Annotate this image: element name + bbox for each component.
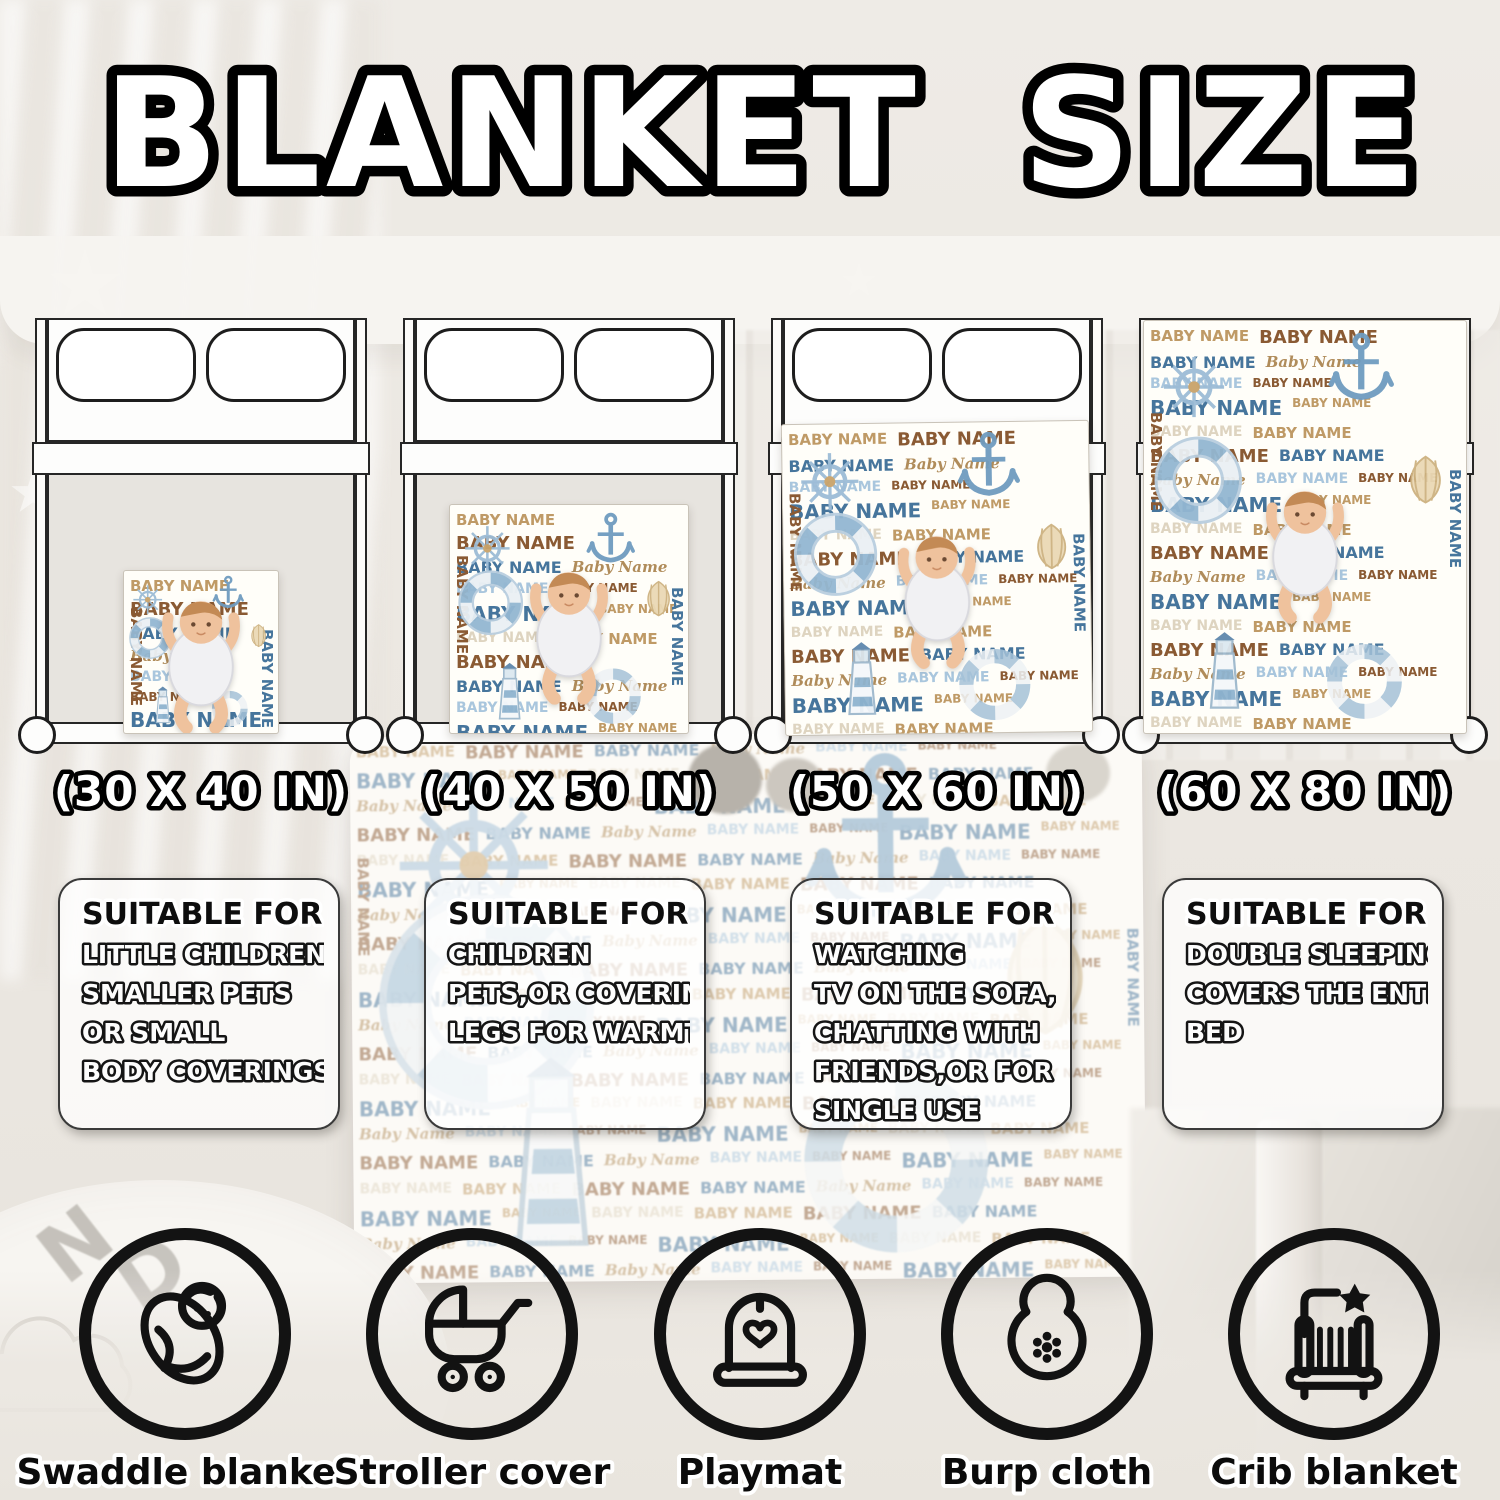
- blanket-pattern-word: BABY NAME: [1358, 568, 1437, 587]
- bed-post: [346, 716, 384, 754]
- blanket-60x80: BABY NAMEBABY NAMEBABY NAMEBaby NameBABY…: [1143, 320, 1467, 734]
- blanket-pattern-word: BABY NAME: [792, 721, 885, 735]
- use-label-text: Crib blanket: [1210, 1452, 1457, 1493]
- pillow: [792, 328, 932, 402]
- blanket-pattern-word: BABY NAME: [456, 721, 588, 734]
- seashell-icon: [1395, 449, 1456, 510]
- bed-diagram-40x50: BABY NAMEBABY NAMEBABY NAMEBaby NameBABY…: [403, 318, 735, 756]
- bed-post: [386, 716, 424, 754]
- suitable-heading: SUITABLE FOR: [814, 897, 1055, 932]
- crib-icon: [1260, 1260, 1408, 1408]
- bed-rail: [403, 318, 415, 732]
- icon-circle: [941, 1228, 1153, 1440]
- suitable-line: LITTLE CHILDREN: [82, 940, 324, 969]
- lifebuoy-icon: [1150, 432, 1247, 529]
- baby-photo: [148, 589, 254, 733]
- seashell-icon: [636, 576, 681, 621]
- pillow: [424, 328, 564, 402]
- suitable-line: PETS,OR COVERING: [448, 979, 690, 1008]
- blanket-pattern-word: Baby Name: [604, 1150, 700, 1176]
- suitable-line: CHILDREN: [448, 940, 591, 969]
- blanket-pattern-word: Baby Name: [1150, 568, 1246, 587]
- use-label-text: Burp cloth: [942, 1452, 1152, 1493]
- page-title: BLANKET SIZE: [0, 28, 1500, 224]
- bed-rail: [771, 318, 783, 732]
- size-label-40x50: (40 X 50 IN): [403, 760, 735, 822]
- seashell-icon: [1022, 517, 1081, 576]
- sheet-fold: [32, 442, 370, 475]
- anchor-icon: [1321, 329, 1402, 410]
- blanket-pattern-word: BABY NAME: [360, 1181, 453, 1204]
- blanket-pattern: BABY NAMEBABY NAMEBABY NAMEBaby NameBABY…: [450, 505, 688, 733]
- bed-headboard: [415, 318, 723, 442]
- size-label-60x80: (60 X 80 IN): [1139, 760, 1471, 822]
- anchor-icon: [950, 428, 1028, 506]
- bed-post: [18, 716, 56, 754]
- playmat-icon: [686, 1260, 834, 1408]
- stroller-icon: [398, 1260, 546, 1408]
- blanket-pattern-word: BABY NAME: [1252, 424, 1351, 443]
- pillow: [56, 328, 196, 402]
- size-label-text: (40 X 50 IN): [422, 767, 716, 816]
- suitable-line: TV ON THE SOFA,: [814, 979, 1056, 1008]
- ship-wheel-icon: [794, 446, 865, 517]
- bed-rail: [1091, 318, 1103, 732]
- icon-circle: [79, 1228, 291, 1440]
- size-label-text: (30 X 40 IN): [54, 767, 348, 816]
- blanket-30x40: BABY NAMEBABY NAMEBABY NAMEBaby NameBABY…: [123, 570, 279, 734]
- suitable-line: OR SMALL: [82, 1018, 225, 1047]
- suitable-line: FRIENDS,OR FOR: [814, 1057, 1053, 1086]
- size-label-50x60: (50 X 60 IN): [771, 760, 1103, 822]
- blanket-pattern-word: BABY NAME: [359, 1152, 478, 1178]
- ship-wheel-icon: [1157, 350, 1231, 424]
- icon-circle: [654, 1228, 866, 1440]
- blanket-40x50: BABY NAMEBABY NAMEBABY NAMEBaby NameBABY…: [449, 504, 689, 734]
- suitable-line: CHATTING WITH: [814, 1018, 1040, 1047]
- blanket-50x60: BABY NAMEBABY NAMEBABY NAMEBaby NameBABY…: [781, 420, 1093, 736]
- size-label-30x40: (30 X 40 IN): [35, 760, 367, 822]
- pillow: [574, 328, 714, 402]
- bed-diagram-50x60: BABY NAMEBABY NAMEBABY NAMEBaby NameBABY…: [771, 318, 1103, 756]
- suitable-line: BED: [1186, 1018, 1243, 1047]
- blanket-pattern-word: BABY NAME: [1150, 715, 1242, 733]
- burp-cloth-icon: [973, 1260, 1121, 1408]
- swaddle-icon: [111, 1260, 259, 1408]
- blanket-pattern-word: BABY NAME: [1043, 1147, 1122, 1173]
- infographic-canvas: BABY NAMEBABY NAMEBABY NAMEBaby NameBABY…: [0, 0, 1500, 1500]
- blanket-pattern-word: BABY NAME: [693, 1094, 792, 1120]
- blanket-pattern-word: BABY NAME: [1024, 1175, 1103, 1198]
- lighthouse-icon: [840, 641, 884, 719]
- suitable-line: BODY COVERINGS: [82, 1057, 324, 1086]
- lifebuoy-icon: [789, 507, 882, 600]
- baby-photo: [1252, 479, 1358, 624]
- blanket-pattern-word: Baby Name: [601, 822, 697, 848]
- title-word-size: SIZE: [1022, 45, 1422, 222]
- bed-rail: [35, 318, 47, 732]
- icon-circle: [1228, 1228, 1440, 1440]
- suitable-box-40x50: SUITABLE FOR CHILDREN PETS,OR COVERING L…: [424, 878, 706, 1130]
- blanket-pattern-word: BABY NAME: [568, 850, 687, 874]
- baby-photo: [883, 524, 991, 670]
- blanket-pattern-word: BABY NAME: [1040, 818, 1119, 844]
- baby-photo: [516, 560, 622, 705]
- use-label-text: Stroller cover: [334, 1452, 611, 1493]
- suitable-box-30x40: SUITABLE FOR LITTLE CHILDREN SMALLER PET…: [58, 878, 340, 1130]
- suitable-line: WATCHING: [814, 940, 965, 969]
- blanket-pattern: BABY NAMEBABY NAMEBABY NAMEBaby NameBABY…: [1144, 321, 1466, 733]
- blanket-pattern-word: BABY NAME: [698, 959, 804, 982]
- blanket-pattern-word: BABY NAME: [1021, 846, 1100, 869]
- blanket-pattern-word: BABY NAME: [694, 1203, 793, 1229]
- use-label-text: Playmat: [678, 1452, 842, 1493]
- bed-diagram-60x80: BABY NAMEBABY NAMEBABY NAMEBaby NameBABY…: [1139, 318, 1471, 756]
- suitable-line: DOUBLE SLEEPING: [1186, 940, 1428, 969]
- size-label-text: (60 X 80 IN): [1158, 767, 1452, 816]
- suitable-box-50x60: SUITABLE FOR WATCHING TV ON THE SOFA, CH…: [790, 878, 1072, 1130]
- blanket-pattern-word: BABY NAME: [1252, 376, 1331, 394]
- sheet-fold: [400, 442, 738, 475]
- bed-rail: [723, 318, 735, 732]
- use-label: Crib blanket: [1164, 1444, 1500, 1500]
- blanket-pattern-word: BABY NAME: [692, 984, 791, 1010]
- suitable-box-60x80: SUITABLE FOR DOUBLE SLEEPING COVERS THE …: [1162, 878, 1444, 1130]
- suitable-heading: SUITABLE FOR: [448, 897, 689, 932]
- pillow: [942, 328, 1082, 402]
- suitable-heading: SUITABLE FOR: [82, 897, 323, 932]
- use-item-crib: Crib blanket: [1164, 1228, 1500, 1500]
- size-label-text: (50 X 60 IN): [790, 767, 1084, 816]
- pillow: [206, 328, 346, 402]
- suitable-line: LEGS FOR WARMTH: [448, 1018, 690, 1047]
- lifebuoy-icon: [1321, 638, 1408, 725]
- bed-headboard: [47, 318, 355, 442]
- blanket-pattern: BABY NAMEBABY NAMEBABY NAMEBaby NameBABY…: [124, 571, 278, 733]
- suitable-heading: SUITABLE FOR: [1186, 897, 1427, 932]
- blanket-pattern-word: BABY NAME: [1150, 327, 1249, 350]
- icon-circle: [366, 1228, 578, 1440]
- suitable-line: SMALLER PETS: [82, 979, 292, 1008]
- suitable-line: COVERS THE ENTIRE: [1186, 979, 1428, 1008]
- bed-diagram-30x40: BABY NAMEBABY NAMEBABY NAMEBaby NameBABY…: [35, 318, 367, 756]
- bed-rail: [355, 318, 367, 732]
- suitable-line: SINGLE USE: [814, 1096, 980, 1125]
- title-word-blanket: BLANKET: [103, 45, 921, 222]
- blanket-pattern-word: BABY NAME: [1123, 927, 1143, 1026]
- lighthouse-icon: [1202, 631, 1247, 712]
- blanket-pattern: BABY NAMEBABY NAMEBABY NAMEBaby NameBABY…: [782, 421, 1092, 735]
- blanket-pattern-word: BABY NAME: [1279, 446, 1385, 469]
- bed-post: [714, 716, 752, 754]
